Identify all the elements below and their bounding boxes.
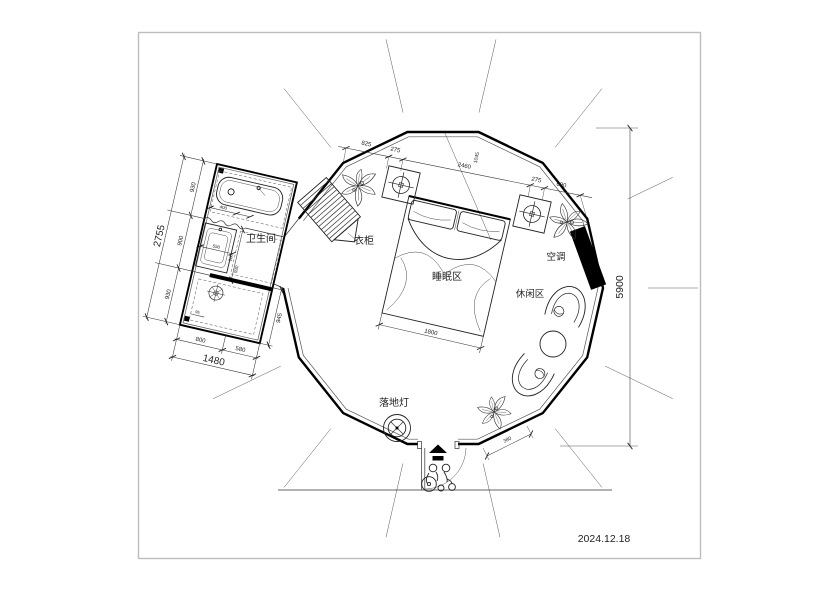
- leisure-chair-lower: [504, 353, 555, 404]
- dim-top-275b: 275: [531, 177, 543, 185]
- dim-top-2460: 2460: [457, 162, 472, 171]
- dim-top-275a: 275: [390, 147, 402, 155]
- dim-380: 380: [502, 435, 512, 444]
- room-label-wardrobe: 衣柜: [354, 234, 374, 247]
- nightstand-left: [382, 166, 420, 204]
- room-label-leisure: 休闲区: [516, 288, 545, 300]
- dim-1800: 1800: [424, 328, 439, 337]
- room-label-ac: 空调: [546, 251, 565, 263]
- bathroom-annex: 400 550 900 930 95: [128, 151, 314, 383]
- leisure-chair-upper: [544, 281, 592, 328]
- ac-unit: [570, 226, 606, 290]
- dim-2755: 2755: [152, 223, 168, 248]
- floor-plan-drawing: 1800: [0, 0, 837, 592]
- dim-945: 945: [276, 312, 284, 324]
- drawing-date: 2024.12.18: [578, 533, 631, 545]
- downlight-icon: [516, 198, 547, 229]
- dim-top-1045: 1045: [473, 152, 481, 164]
- room-label-sleeping: 睡眠区: [432, 270, 462, 283]
- nightstand-right: [513, 195, 551, 233]
- room-walls: [274, 132, 603, 444]
- floor-lamp: [384, 415, 411, 442]
- room-label-floor-lamp: 落地灯: [379, 396, 409, 409]
- dim-5900: 5900: [614, 275, 626, 299]
- round-table: [540, 331, 566, 357]
- dim-1480: 1480: [202, 353, 227, 369]
- dim-top-690: 690: [556, 182, 568, 190]
- room-label-bathroom: 卫生间: [246, 232, 276, 245]
- person-wheelchair-figure: [422, 464, 456, 491]
- floor-plan-window: 1800: [0, 0, 837, 592]
- dim-top-825: 825: [361, 141, 373, 149]
- dim-door-side: 380: [483, 426, 535, 460]
